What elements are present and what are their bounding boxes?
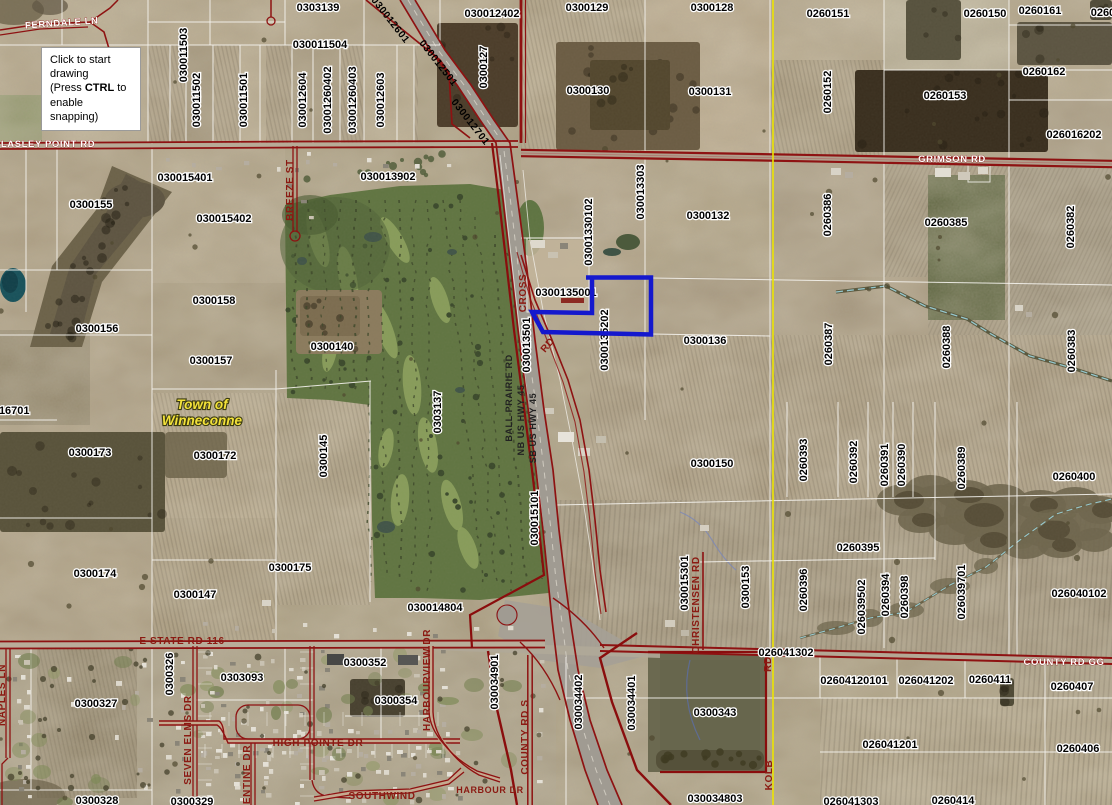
svg-text:0260385: 0260385 [925, 217, 968, 229]
svg-text:GRIMSON RD: GRIMSON RD [918, 154, 986, 165]
svg-text:0300147: 0300147 [174, 589, 217, 601]
svg-text:0260396: 0260396 [798, 569, 810, 612]
svg-text:0260161: 0260161 [1019, 5, 1062, 17]
svg-text:BALL PRAIRIE RD: BALL PRAIRIE RD [504, 354, 514, 441]
svg-text:0300153: 0300153 [740, 566, 752, 609]
svg-text:0260394: 0260394 [880, 573, 892, 617]
svg-text:030012603: 030012603 [375, 72, 387, 127]
svg-text:0300135202: 0300135202 [599, 309, 611, 370]
svg-text:030013303: 030013303 [635, 164, 647, 219]
svg-text:0260393: 0260393 [798, 439, 810, 482]
svg-text:LASLEY POINT RD: LASLEY POINT RD [1, 139, 95, 150]
svg-text:0300174: 0300174 [74, 568, 118, 580]
svg-text:0260400: 0260400 [1053, 471, 1096, 483]
svg-text:0300172: 0300172 [194, 450, 237, 462]
svg-text:03001330102: 03001330102 [583, 198, 595, 265]
svg-text:0260389: 0260389 [956, 447, 968, 490]
svg-text:0260153: 0260153 [924, 90, 967, 102]
svg-text:0300127: 0300127 [478, 46, 490, 89]
svg-text:SEVEN ELMS DR: SEVEN ELMS DR [183, 695, 194, 785]
svg-text:03001260402: 03001260402 [322, 66, 334, 133]
svg-text:0260151: 0260151 [807, 8, 850, 20]
svg-text:0300132: 0300132 [687, 210, 730, 222]
svg-text:0260414: 0260414 [932, 795, 976, 805]
svg-text:0300343: 0300343 [694, 707, 737, 719]
svg-text:030011501: 030011501 [238, 73, 250, 127]
svg-text:VALENTINE DR: VALENTINE DR [242, 745, 253, 805]
svg-text:030012402: 030012402 [464, 8, 519, 20]
svg-text:0300354: 0300354 [375, 695, 419, 707]
svg-text:0260391: 0260391 [879, 444, 891, 487]
svg-text:0260387: 0260387 [823, 323, 835, 366]
svg-text:0260411: 0260411 [969, 674, 1011, 686]
svg-text:KOLB: KOLB [764, 760, 775, 791]
svg-text:026039701: 026039701 [956, 564, 968, 619]
svg-text:0300158: 0300158 [193, 295, 236, 307]
svg-text:030012604: 030012604 [297, 72, 309, 128]
svg-text:0260398: 0260398 [899, 576, 911, 619]
svg-text:0300352: 0300352 [344, 657, 387, 669]
svg-text:030011502: 030011502 [191, 73, 203, 127]
svg-text:0260152: 0260152 [822, 71, 834, 114]
svg-text:COUNTY RD GG: COUNTY RD GG [1024, 657, 1105, 668]
svg-text:0300173: 0300173 [69, 447, 112, 459]
svg-text:0300140: 0300140 [311, 341, 354, 353]
svg-text:02604120101: 02604120101 [820, 675, 887, 687]
svg-text:02601: 02601 [1091, 7, 1112, 19]
svg-text:030011503: 030011503 [178, 28, 190, 82]
svg-text:0300150: 0300150 [691, 458, 734, 470]
svg-text:0300175: 0300175 [269, 562, 312, 574]
svg-text:CHRISTENSEN RD: CHRISTENSEN RD [691, 556, 702, 653]
svg-text:026016202: 026016202 [1046, 129, 1101, 141]
svg-text:HARBOURVIEW DR: HARBOURVIEW DR [422, 629, 433, 731]
svg-text:SOUTHWIND: SOUTHWIND [348, 791, 415, 802]
svg-text:0260392: 0260392 [848, 441, 860, 484]
svg-text:COUNTY RD S: COUNTY RD S [520, 699, 531, 774]
svg-text:030014804: 030014804 [407, 602, 463, 614]
svg-text:030034401: 030034401 [626, 675, 638, 730]
svg-text:030034402: 030034402 [573, 674, 585, 729]
svg-text:030011504: 030011504 [293, 39, 348, 51]
svg-text:0300131: 0300131 [689, 86, 732, 98]
svg-text:0303093: 0303093 [221, 672, 264, 684]
svg-text:0300327: 0300327 [75, 698, 118, 710]
svg-text:030013501: 030013501 [521, 317, 533, 372]
svg-text:0260382: 0260382 [1065, 206, 1077, 249]
svg-text:E STATE RD 116: E STATE RD 116 [139, 636, 224, 647]
svg-text:0300128: 0300128 [691, 2, 734, 14]
svg-text:0260406: 0260406 [1057, 743, 1100, 755]
svg-text:SB US HWY 45: SB US HWY 45 [528, 393, 538, 464]
svg-text:026041303: 026041303 [823, 796, 878, 805]
svg-text:0260162: 0260162 [1023, 66, 1066, 78]
svg-text:BREEZE ST: BREEZE ST [285, 159, 296, 221]
svg-text:0303137: 0303137 [432, 391, 444, 434]
svg-text:030016701: 030016701 [0, 405, 30, 417]
svg-text:0300129: 0300129 [566, 2, 609, 14]
svg-text:030015402: 030015402 [196, 213, 251, 225]
svg-text:0260388: 0260388 [941, 326, 953, 369]
svg-text:0300157: 0300157 [190, 355, 233, 367]
svg-text:0303139: 0303139 [297, 2, 340, 14]
svg-text:Town of: Town of [176, 397, 229, 412]
svg-text:HIGH POINTE DR: HIGH POINTE DR [273, 738, 364, 749]
svg-text:0260390: 0260390 [896, 444, 908, 487]
svg-text:0300328: 0300328 [76, 795, 119, 805]
svg-text:03001260403: 03001260403 [347, 66, 359, 133]
svg-text:0260383: 0260383 [1066, 330, 1078, 373]
svg-text:026041201: 026041201 [862, 739, 917, 751]
svg-text:0300130: 0300130 [567, 85, 610, 97]
svg-text:CROSS: CROSS [518, 274, 529, 313]
svg-text:026039502: 026039502 [856, 579, 868, 634]
svg-text:0300326: 0300326 [164, 653, 176, 696]
svg-text:030034803: 030034803 [687, 793, 742, 805]
svg-text:0300136: 0300136 [684, 335, 727, 347]
svg-text:030015401: 030015401 [157, 172, 212, 184]
svg-text:030013902: 030013902 [360, 171, 415, 183]
svg-text:0300156: 0300156 [76, 323, 119, 335]
svg-text:030015301: 030015301 [679, 555, 691, 610]
svg-text:RD: RD [763, 656, 774, 672]
svg-text:Winneconne: Winneconne [162, 413, 243, 428]
svg-text:HARBOUR DR: HARBOUR DR [456, 785, 524, 795]
svg-text:0300329: 0300329 [171, 796, 214, 805]
svg-text:0260395: 0260395 [837, 542, 880, 554]
svg-text:NB US HWY 45: NB US HWY 45 [516, 384, 526, 455]
svg-text:030034901: 030034901 [489, 654, 501, 709]
svg-text:NAPLES LN: NAPLES LN [0, 664, 8, 726]
svg-text:0300145: 0300145 [318, 435, 330, 478]
svg-text:030015101: 030015101 [529, 490, 541, 545]
svg-text:0260150: 0260150 [964, 8, 1007, 20]
svg-text:0300155: 0300155 [70, 199, 113, 211]
svg-text:0300135001: 0300135001 [535, 287, 596, 299]
svg-text:0260386: 0260386 [822, 194, 834, 237]
svg-text:026040102: 026040102 [1051, 588, 1106, 600]
svg-text:026041202: 026041202 [898, 675, 953, 687]
svg-text:0260407: 0260407 [1051, 681, 1094, 693]
